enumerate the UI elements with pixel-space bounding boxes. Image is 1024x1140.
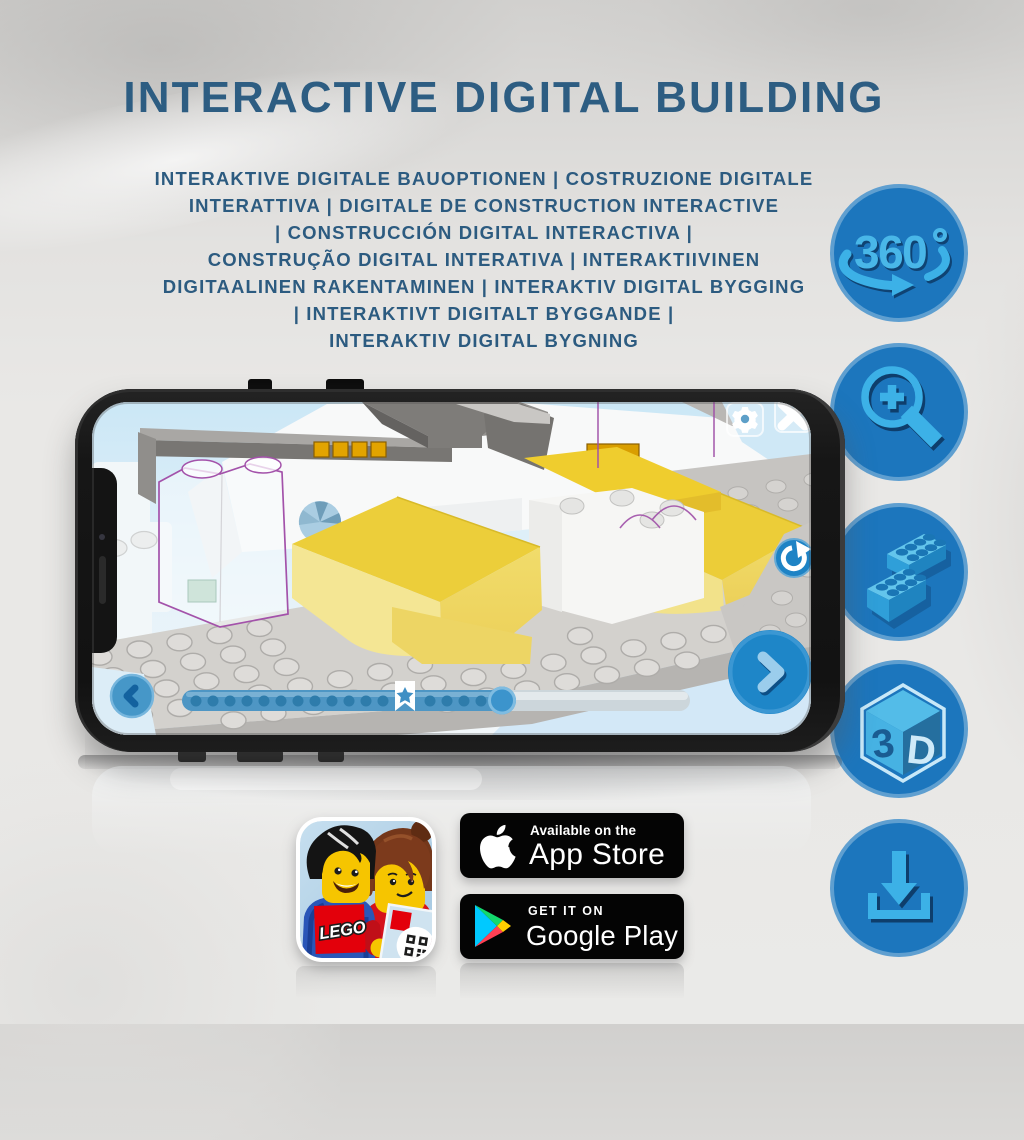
svg-text:D: D [905, 728, 938, 775]
svg-text:360: 360 [854, 226, 926, 278]
